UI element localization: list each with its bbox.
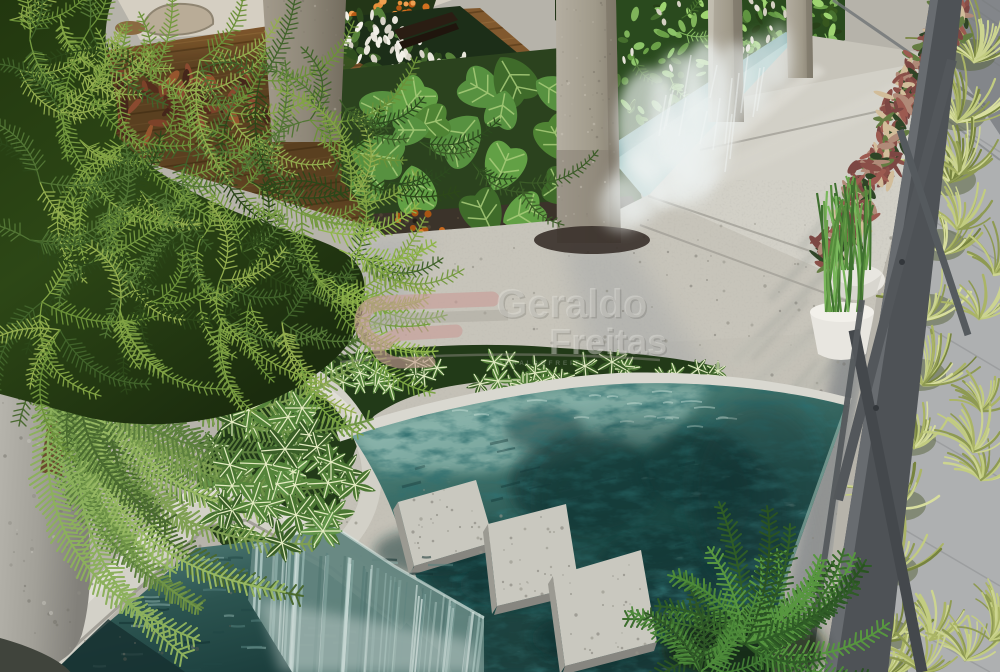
svg-text:Freitas: Freitas	[549, 321, 667, 362]
svg-text:G E R A L D O F R E I T A S: G E R A L D O F R E I T A S	[497, 360, 593, 367]
svg-text:Geraldo: Geraldo	[496, 282, 647, 326]
